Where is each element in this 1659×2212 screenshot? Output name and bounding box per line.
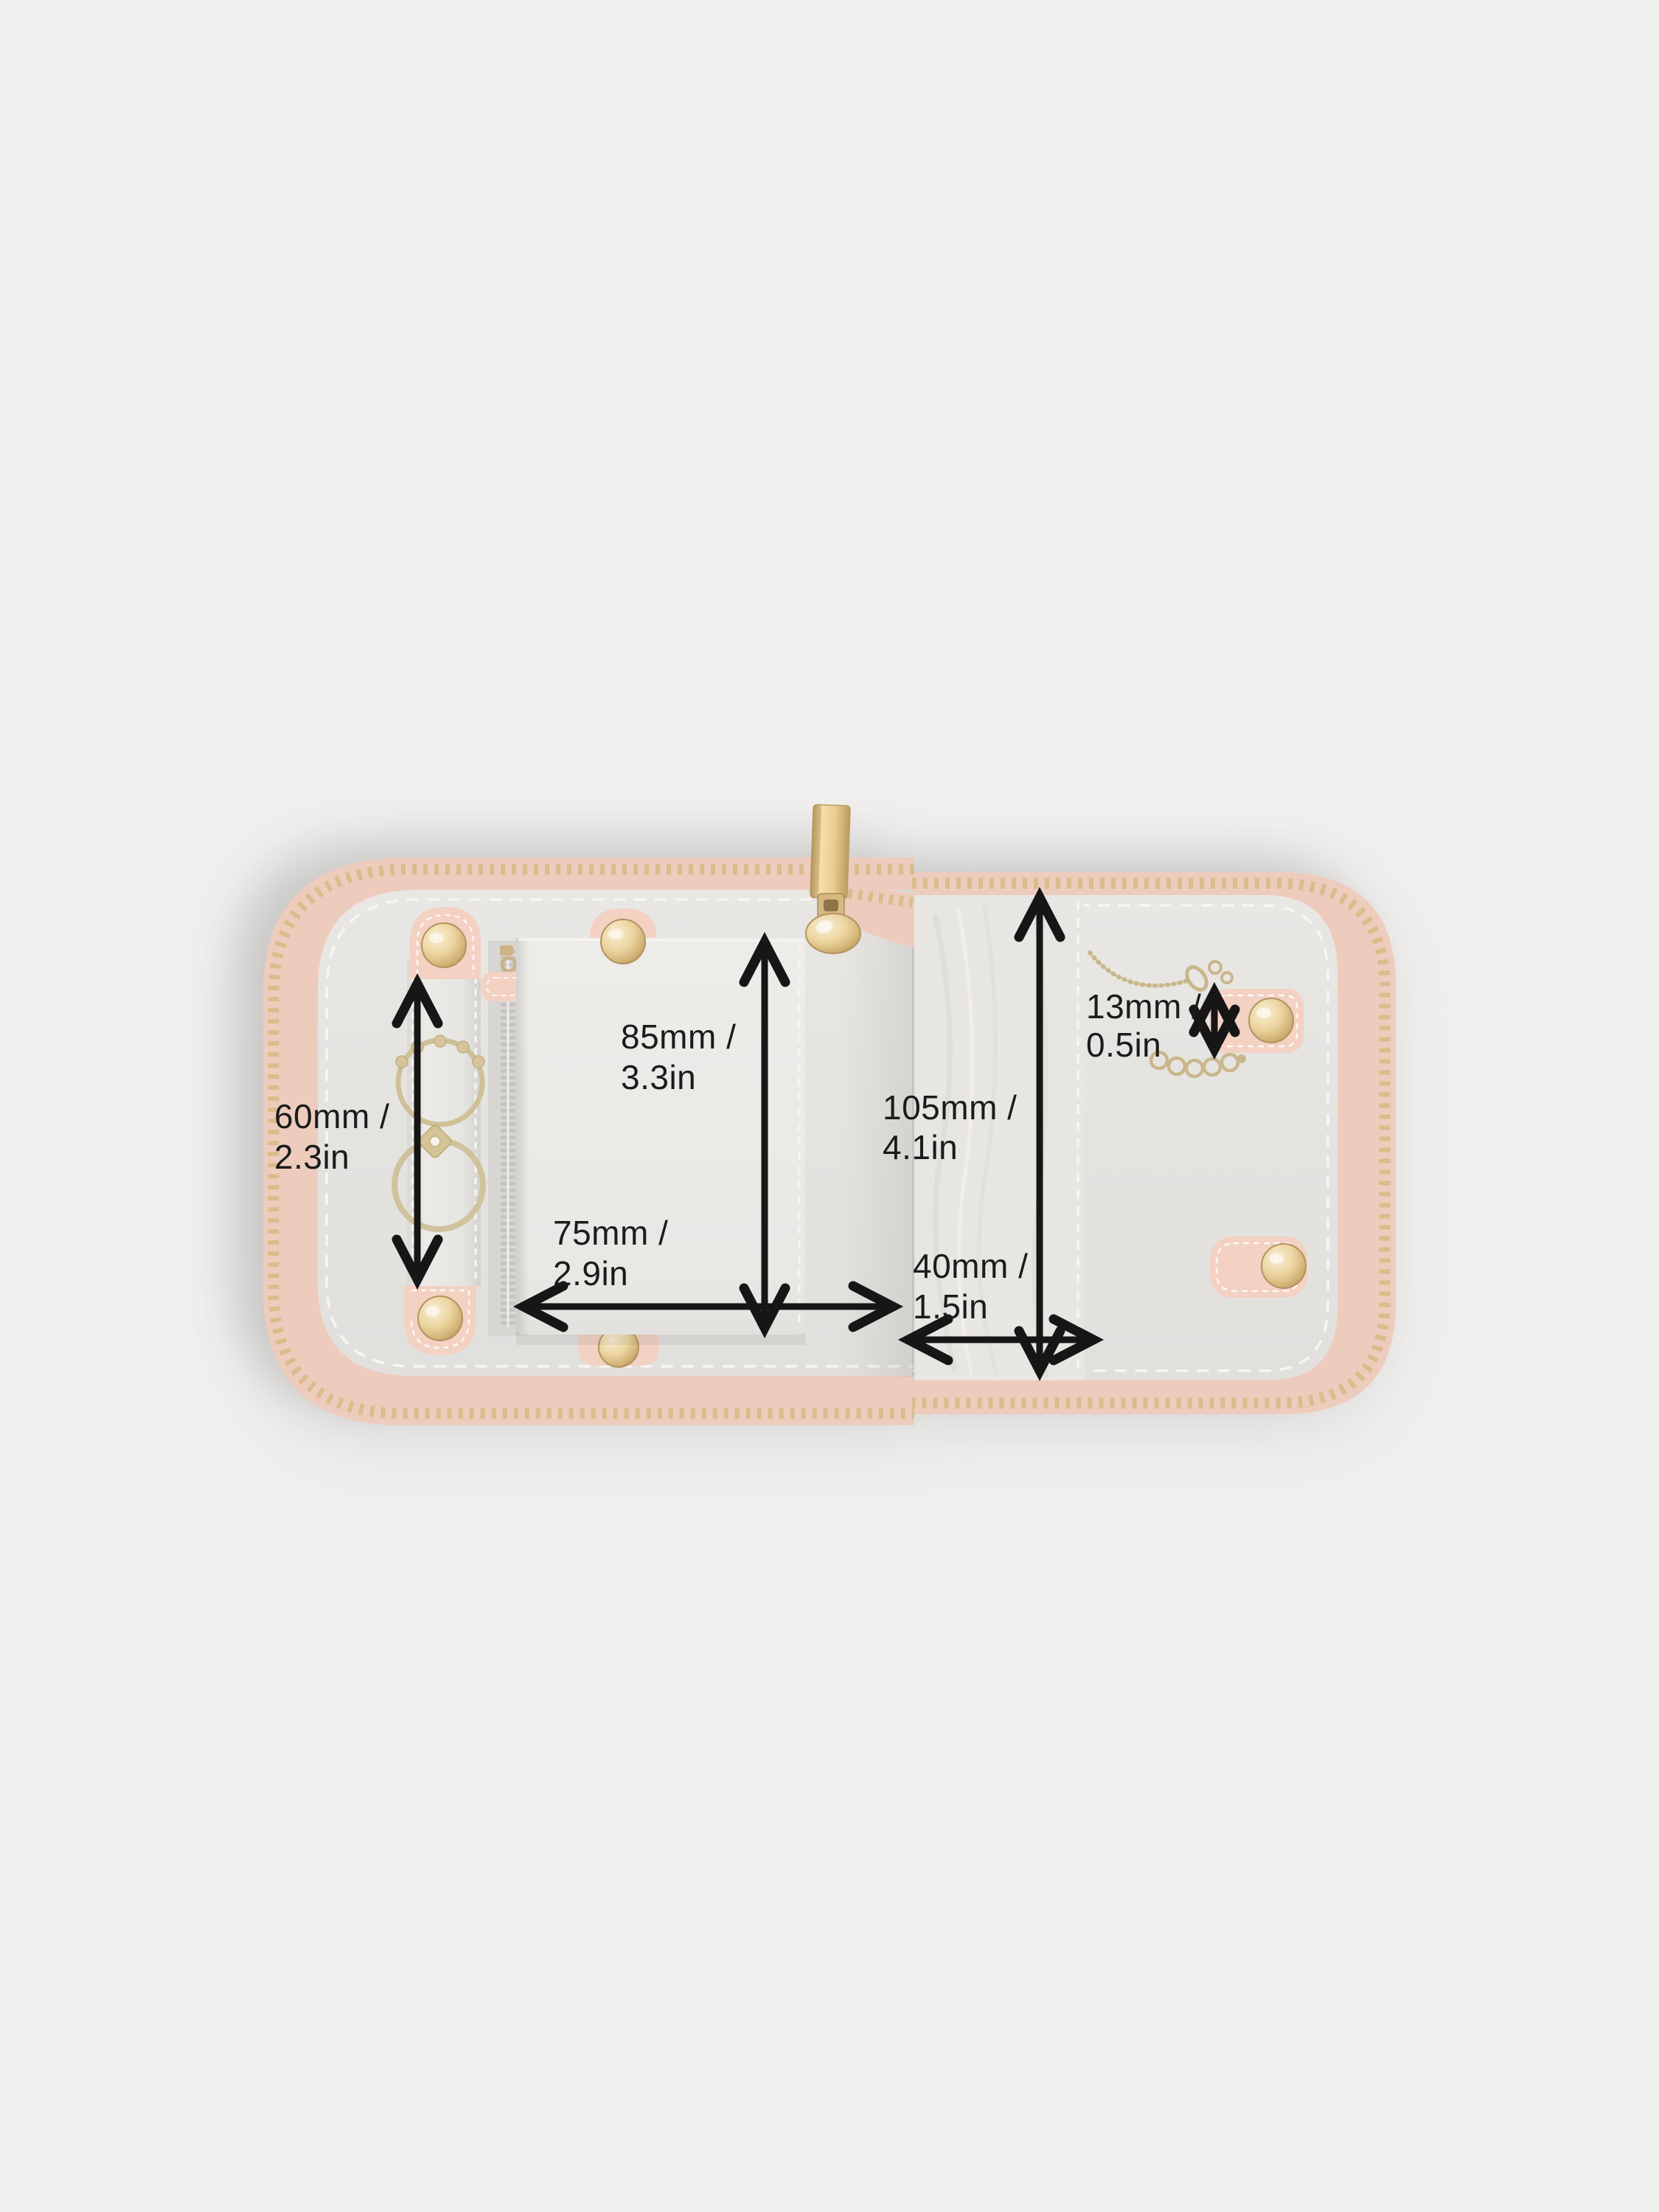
label-85mm-line1: 85mm /: [621, 1018, 736, 1056]
label-40mm-line2: 1.5in: [913, 1287, 988, 1326]
label-40mm-line1: 40mm /: [913, 1247, 1028, 1285]
label-85mm-line2: 3.3in: [621, 1058, 696, 1096]
snap-button-icon: [418, 1296, 462, 1340]
snap-button-icon: [1262, 1244, 1306, 1288]
label-13mm-line1: 13mm /: [1086, 987, 1201, 1026]
snap-button-icon: [1249, 998, 1293, 1043]
zip-slider-icon: [806, 914, 860, 953]
ring-stone: [430, 1136, 440, 1147]
label-13mm-line2: 0.5in: [1086, 1026, 1161, 1064]
label-75mm-line2: 2.9in: [553, 1254, 628, 1293]
label-105mm-line2: 4.1in: [883, 1128, 958, 1166]
necklace-snap-tab: [1209, 989, 1304, 1053]
necklace-anchor-tab: [1210, 1237, 1307, 1298]
snap-button-icon: [601, 919, 645, 964]
label-60mm-line2: 2.3in: [274, 1138, 349, 1176]
label-60mm-line1: 60mm /: [274, 1097, 389, 1135]
jewellery-case-illustration: 60mm / 2.3in 85mm / 3.3in 75mm / 2.9in 1…: [0, 0, 1659, 2212]
label-105mm-line1: 105mm /: [883, 1088, 1017, 1127]
product-dimension-photo: 60mm / 2.3in 85mm / 3.3in 75mm / 2.9in 1…: [0, 0, 1659, 2212]
zip-top-stop-icon: [500, 945, 513, 956]
label-75mm-line1: 75mm /: [553, 1214, 668, 1252]
snap-button-icon: [422, 923, 466, 967]
